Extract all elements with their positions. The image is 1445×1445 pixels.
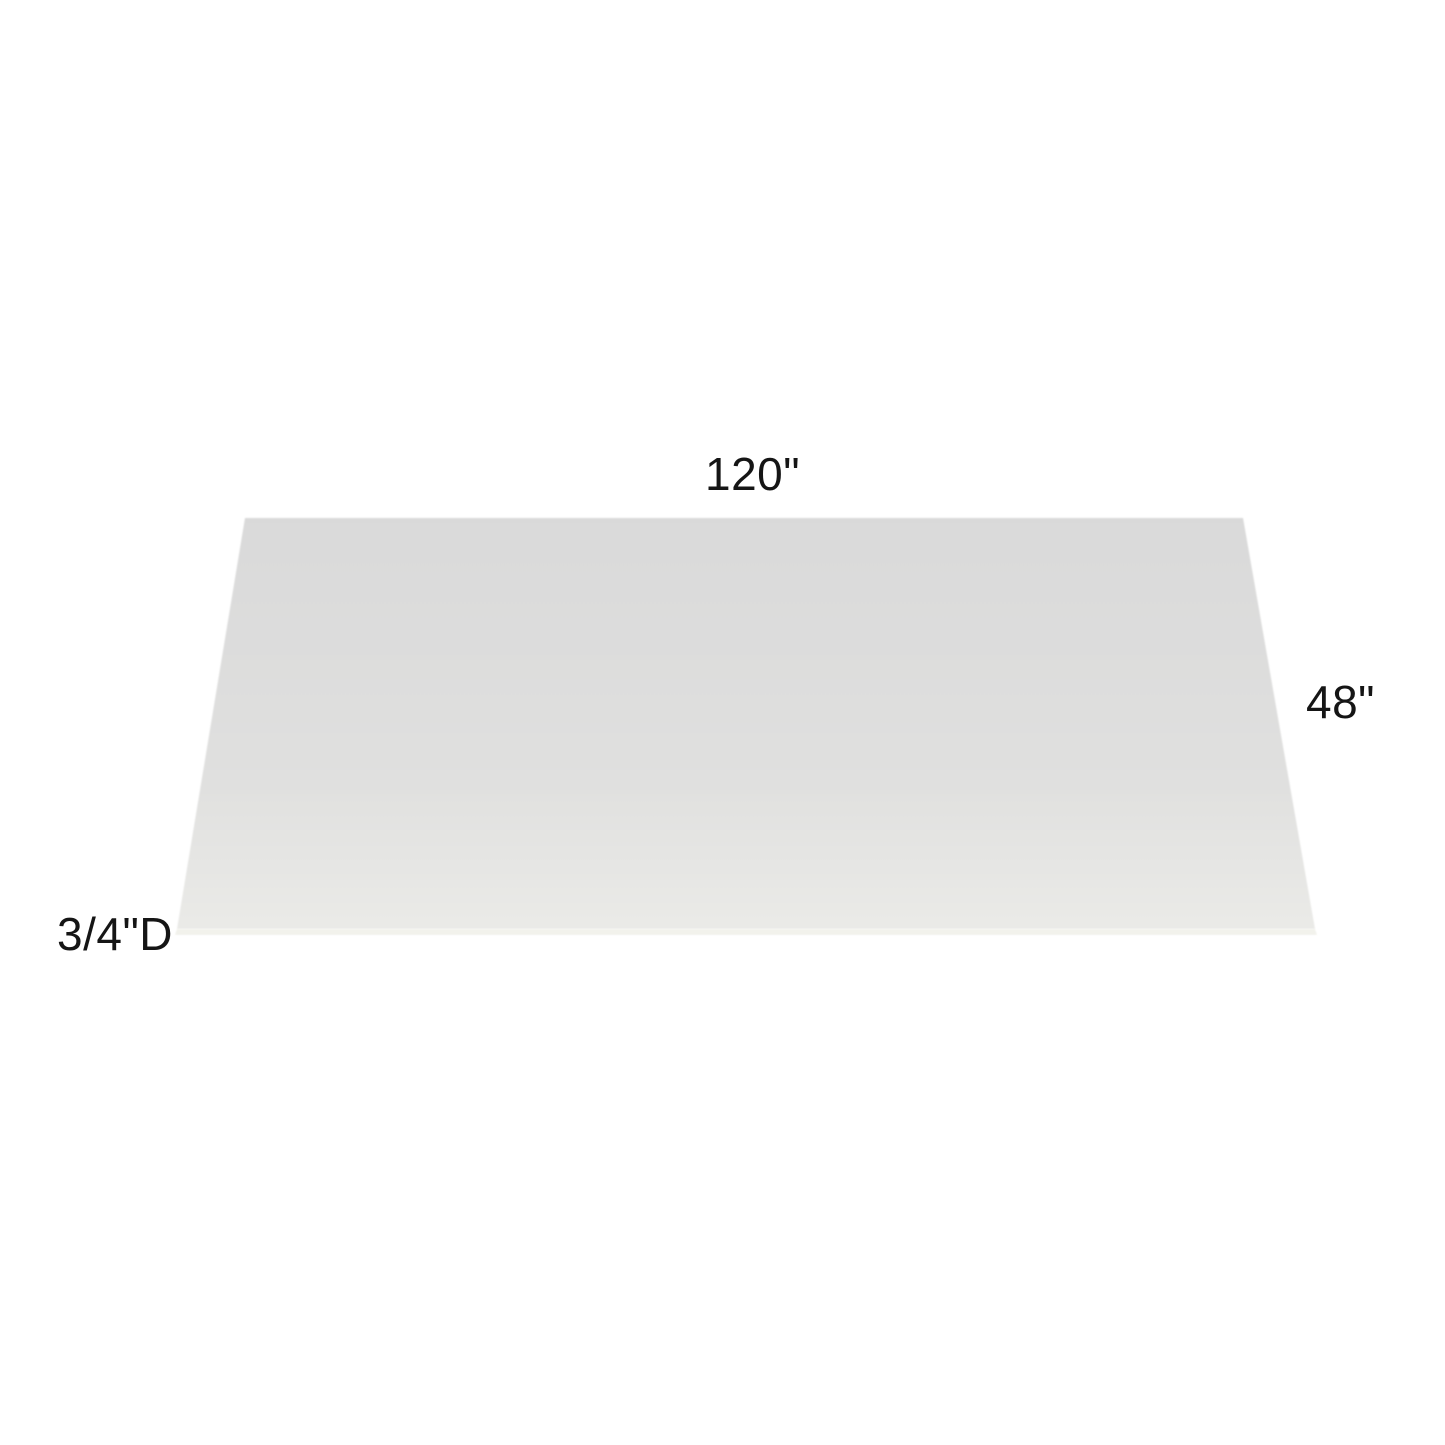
product-dimension-diagram: 120" 48" 3/4"D [0,0,1445,1445]
panel-top-surface [177,518,1315,929]
width-dimension-label: 120" [705,451,800,497]
height-dimension-label: 48" [1306,679,1375,725]
panel-front-edge [175,929,1317,935]
depth-dimension-label: 3/4"D [57,911,173,957]
panel-illustration [0,0,1445,1445]
